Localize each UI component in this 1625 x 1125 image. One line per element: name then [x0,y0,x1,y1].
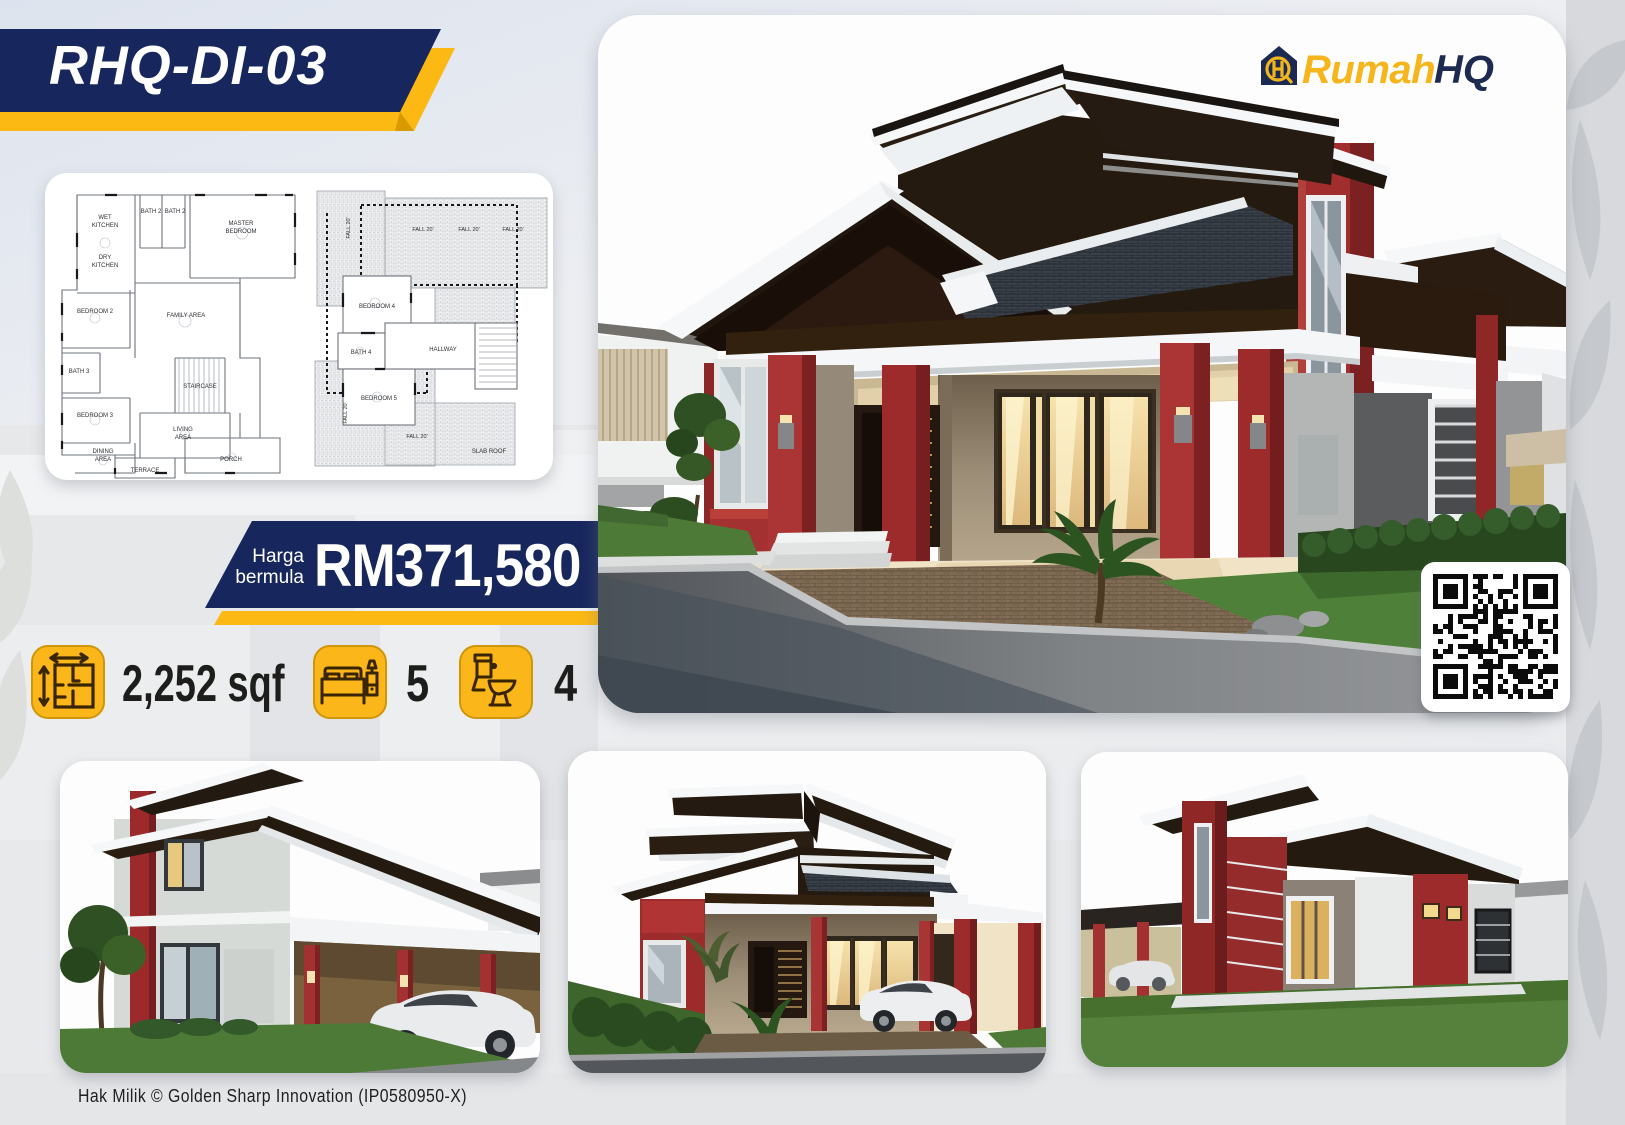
svg-text:FALL 20': FALL 20' [343,402,349,423]
svg-text:STAIRCASE: STAIRCASE [183,384,217,390]
svg-text:FALL 20': FALL 20' [458,227,479,233]
svg-text:WET: WET [98,215,112,221]
svg-text:DINING: DINING [93,449,114,455]
svg-text:BATH 4: BATH 4 [351,350,372,356]
svg-text:BEDROOM 3: BEDROOM 3 [77,413,114,419]
svg-text:MASTER: MASTER [228,221,254,227]
svg-text:DRY: DRY [99,255,112,261]
svg-text:FALL 20': FALL 20' [406,434,427,440]
svg-text:SLAB ROOF: SLAB ROOF [472,449,507,455]
svg-text:FALL 20': FALL 20' [346,217,352,238]
svg-text:AREA: AREA [175,435,191,441]
svg-text:BATH 2: BATH 2 [165,209,186,215]
svg-text:KITCHEN: KITCHEN [92,263,118,269]
svg-text:FALL 20': FALL 20' [412,227,433,233]
svg-text:BEDROOM 5: BEDROOM 5 [361,396,398,402]
svg-text:KITCHEN: KITCHEN [92,223,118,229]
svg-text:AREA: AREA [95,457,111,463]
svg-text:PORCH: PORCH [220,457,242,463]
svg-text:Rumah: Rumah [1302,48,1435,92]
svg-text:FALL 20': FALL 20' [502,227,523,233]
svg-text:BATH 2: BATH 2 [141,209,162,215]
svg-text:BEDROOM: BEDROOM [225,229,256,235]
svg-text:BEDROOM 2: BEDROOM 2 [77,309,114,315]
svg-text:TERRACE: TERRACE [131,468,160,474]
svg-text:LIVING: LIVING [173,427,193,433]
svg-text:BEDROOM 4: BEDROOM 4 [359,304,396,310]
svg-text:FAMILY AREA: FAMILY AREA [167,313,205,319]
svg-text:HQ: HQ [1434,48,1494,92]
svg-text:BATH 3: BATH 3 [69,369,90,375]
svg-text:HALLWAY: HALLWAY [429,347,457,353]
